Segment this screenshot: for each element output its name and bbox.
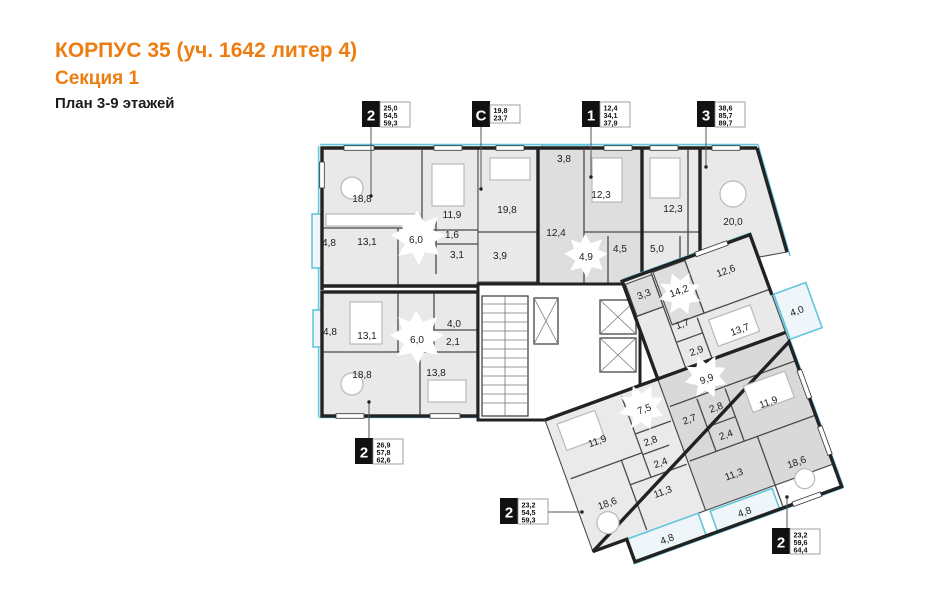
badge-value: 23,7 [494, 114, 508, 123]
room-label: 3,8 [557, 154, 571, 165]
room-label: 19,8 [497, 205, 517, 216]
room-label: 4,8 [322, 238, 336, 249]
room-label: 11,9 [443, 210, 462, 221]
badge-digit: 2 [505, 505, 513, 522]
badge-digit: 2 [360, 445, 368, 462]
room-label: 3,9 [493, 251, 507, 262]
room-label: 13,8 [426, 368, 446, 379]
badge-value: 59,3 [384, 119, 398, 128]
section-subtitle: Секция 1 [55, 66, 357, 93]
room-label: 4,5 [613, 244, 627, 255]
room-label: 20,0 [723, 217, 743, 228]
badge-value: 59,3 [522, 516, 536, 525]
floors-label: План 3-9 этажей [55, 93, 357, 114]
room-label: 12,3 [663, 204, 683, 215]
room-label: 4,8 [323, 327, 337, 338]
room-label: 18,8 [352, 194, 372, 205]
floorplan-page: КОРПУС 35 (уч. 1642 литер 4) Секция 1 Пл… [0, 0, 941, 600]
room-label: 13,1 [357, 237, 377, 248]
room-label: 1,6 [445, 230, 459, 241]
badge-value: 62,6 [377, 456, 391, 465]
badge-digit: 3 [702, 108, 710, 125]
room-label: 2,1 [446, 337, 460, 348]
badge-value: 89,7 [719, 119, 733, 128]
room-label: 3,1 [450, 250, 464, 261]
room-label: 6,0 [409, 235, 423, 246]
room-label: 5,0 [650, 244, 664, 255]
room-label: 4,0 [447, 319, 461, 330]
room-label: 6,0 [410, 335, 424, 346]
room-label: 18,8 [352, 370, 372, 381]
room-label: 12,4 [546, 228, 566, 239]
badge-digit: С [476, 108, 487, 125]
badge-digit: 2 [367, 108, 375, 125]
badge-digit: 1 [587, 108, 595, 125]
room-label: 13,1 [357, 331, 377, 342]
room-label: 12,3 [591, 190, 611, 201]
badge-apartment-2c: 2 23,2 54,5 59,3 [500, 498, 584, 525]
page-title: КОРПУС 35 (уч. 1642 литер 4) [55, 36, 357, 66]
badge-value: 37,9 [604, 119, 618, 128]
badge-digit: 2 [777, 535, 785, 552]
room-label: 4,9 [579, 252, 593, 263]
badge-value: 64,4 [794, 546, 808, 555]
page-header: КОРПУС 35 (уч. 1642 литер 4) Секция 1 Пл… [55, 36, 357, 114]
